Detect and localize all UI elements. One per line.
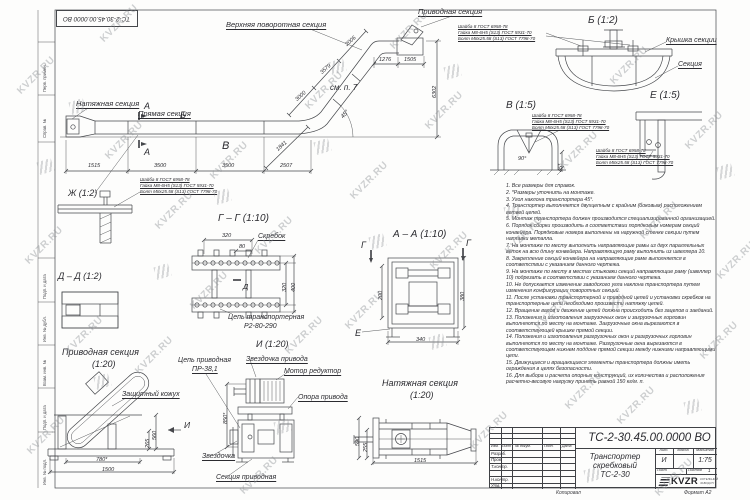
doc-liter: И: [655, 457, 673, 464]
dim-3500-2: 3500: [222, 164, 234, 170]
dim-p-780: 780*: [96, 458, 107, 464]
title-detail-zh: Ж (1:2): [68, 189, 97, 198]
note-item: 7. На монтаже по месту выполнить направл…: [506, 243, 717, 256]
copied-label: Копировал: [556, 490, 581, 496]
label-conveyor-chain-type: Р2-80-290: [244, 323, 277, 330]
stamp-mass-header: Масса: [673, 449, 693, 453]
frame-label-inv-podl: Инв. № подл.: [42, 459, 47, 485]
logo-subtext-2: ЗАВОД.РУ: [700, 482, 718, 485]
detail-letter-e: Е: [355, 329, 361, 338]
hardware-callout-b: Шайба 8 ГОСТ 6958-78 Гайка М8-6Н5 (S13) …: [458, 24, 535, 42]
doc-sheets-count: 1: [708, 469, 711, 474]
note-item: 6. Порядок сборки производить в соответс…: [506, 223, 717, 242]
title-tension-scale: (1:20): [410, 391, 434, 400]
dim-a-340: 340: [416, 338, 425, 344]
label-drive-support: Опора привода: [298, 394, 348, 401]
cut-letter-g-left: Г: [361, 241, 366, 250]
title-section-dd: Д – Д (1:2): [58, 272, 102, 281]
label-drive-sprocket: Звездочка привода: [246, 356, 308, 363]
note-item: 13. Положения и изготовления загрузочных…: [506, 315, 717, 334]
stamp-sheet-header: Лист: [657, 469, 667, 473]
frame-label-sprav: Справ. №: [42, 119, 47, 138]
label-cover: Крышка секции: [666, 37, 717, 44]
title-drive-scale: (1:20): [92, 360, 116, 369]
cut-letter-a-bottom: А: [144, 148, 150, 157]
stamp-row-checker: Пров.: [491, 458, 502, 462]
logo-subtext: КОТЕЛЬНЫЙ ЗАВОД.РУ: [700, 478, 718, 485]
stamp-header-doc: № докум.: [515, 445, 531, 449]
detail-e-view: [636, 112, 702, 179]
frame-label-podp1: Подп. и дата: [42, 274, 47, 299]
dim-g-80: 80: [239, 245, 245, 251]
detail-v-view: [490, 130, 566, 175]
note-item: 3. Угол наклона транспортера 45°.: [506, 197, 717, 203]
title-view-i: И (1:20): [256, 340, 288, 349]
stamp-liter-header: Лит.: [655, 449, 673, 453]
note-item: 2. *Размеры уточнить на монтаже.: [506, 190, 717, 196]
label-motor-reducer: Мотор редуктор: [284, 368, 341, 375]
stamp-header-list: Лист: [502, 445, 511, 449]
stamp-header-date: Дата: [562, 445, 571, 449]
dim-n-590: 590: [356, 437, 362, 446]
stamp-row-ncontrol: Н.контр.: [491, 478, 509, 482]
title-detail-b: Б (1:2): [588, 16, 618, 26]
detail-letter-b: Б: [180, 111, 186, 120]
stamp-row-tcontrol: Т.контр.: [491, 465, 508, 469]
stamp-scale-header: Масштаб: [693, 449, 717, 453]
dim-a-200: 200: [379, 291, 385, 300]
callout-bolt: Болт М8х25.58 (S13) ГОСТ 7798-70: [532, 125, 609, 131]
note-item: 9. На монтаже по месту в местах стыковки…: [506, 269, 717, 282]
dim-p-1500: 1500: [102, 468, 114, 474]
doc-number-top-box: ТС-2-30.45.00.0000 ВО: [56, 10, 138, 27]
label-protective-casing: Защитный кожух: [122, 391, 180, 398]
technical-notes: 1. Все размеры для справок. 2. *Размеры …: [506, 183, 717, 386]
dim-1276: 1276: [379, 58, 391, 64]
dim-n-1515: 1515: [414, 459, 426, 465]
label-sprocket: Звездочка: [202, 453, 235, 460]
callout-bolt: Болт М8х25.58 (S13) ГОСТ 7798-70: [596, 160, 673, 166]
dim-g-400: 400: [292, 283, 298, 292]
frame-label-inv-dubl: Инв. № дубл.: [42, 316, 47, 342]
section-dd-view: [62, 292, 118, 328]
dim-a-380: 380: [461, 292, 467, 301]
dim-6302: 6302: [433, 86, 439, 98]
dim-1505: 1505: [404, 58, 416, 64]
label-drive-section: Приводная секция: [418, 8, 482, 16]
note-item: 16. Для выбора и расчета опорных констру…: [506, 373, 717, 386]
note-item: 1. Все размеры для справок.: [506, 183, 717, 189]
dim-p-560: 560: [153, 431, 159, 440]
label-drive-chain-type: ПР-38,1: [192, 366, 218, 373]
label-scraper: Скребок: [258, 233, 285, 240]
label-section: Секция: [678, 61, 702, 68]
dim-2507: 2507: [280, 164, 292, 170]
stamp-header-izm: Изм.: [491, 445, 499, 449]
stamp-header-sign: Подп.: [544, 445, 554, 449]
doc-title-1: Транспортер: [575, 453, 655, 461]
doc-title-2: скребковый: [575, 462, 655, 470]
dim-i-850: 850*: [224, 413, 230, 424]
title-block: Изм. Лист № докум. Подп. Дата Разраб. Пр…: [489, 427, 716, 488]
dim-g-320-top: 320: [222, 234, 231, 240]
title-drive-section: Приводная секция: [62, 348, 139, 357]
frame-label-vzam: Взам. инв. №: [42, 360, 47, 386]
view-letter-i: И: [184, 421, 190, 430]
detail-b-view: [546, 30, 678, 91]
view-i-drive: [225, 360, 298, 462]
hardware-callout-zh: Шайба 8 ГОСТ 6958-78 Гайка М8-6Н5 (S13) …: [140, 177, 217, 195]
dim-3500-1: 3500: [154, 164, 166, 170]
note-item: 12. Вращение валов и движение цепей долж…: [506, 308, 717, 314]
note-item: 5. Монтаж транспортера должен производит…: [506, 216, 717, 222]
detail-letter-v: В: [222, 141, 229, 152]
note-item: 10. Не допускается изменение заводского …: [506, 282, 717, 295]
doc-scale: 1:75: [693, 457, 717, 464]
drawing-sheet: ТС-2-30.45.00.0000 ВО Перв. примен. Спра…: [0, 0, 750, 500]
callout-bolt: Болт М8х25.58 (S13) ГОСТ 7798-70: [458, 36, 535, 42]
dim-p-265: 265: [146, 439, 152, 448]
dim-v-90: 90°: [518, 157, 526, 163]
format-label: Формат А2: [684, 490, 711, 496]
label-drive-chain: Цепь приводная: [178, 357, 231, 364]
frame-label-podp2: Подп. и дата: [42, 405, 47, 430]
note-item: 15. Движущиеся и вращающиеся элементы тр…: [506, 360, 717, 373]
stamp-row-developer: Разраб.: [491, 452, 506, 456]
doc-number-top: ТС-2-30.45.00.0000 ВО: [63, 15, 130, 22]
logo-bars-icon: [659, 477, 671, 486]
dim-v-45: 45*: [559, 164, 565, 172]
stamp-sheets-header: Листов: [688, 469, 702, 473]
doc-number: ТС-2-30.45.00.0000 ВО: [582, 433, 717, 445]
company-logo: KVZR КОТЕЛЬНЫЙ ЗАВОД.РУ: [660, 476, 718, 487]
frame-label-perv: Перв. примен.: [42, 64, 47, 92]
label-tension-section: Натяжная секция: [76, 100, 139, 108]
note-item: 4. Транспортер выполняется двухцепным с …: [506, 203, 717, 216]
dim-n-255: 255: [364, 443, 370, 452]
note-item: 14. Положения и изготовления разгрузочны…: [506, 334, 717, 359]
detail-zh-view: [58, 191, 140, 243]
hardware-callout-v: Шайба 8 ГОСТ 6958-78 Гайка М8-6Н5 (S13) …: [532, 113, 609, 131]
dim-1515: 1515: [88, 164, 100, 170]
title-section-gg: Г – Г (1:10): [218, 214, 269, 224]
title-tension-section: Натяжная секция: [382, 379, 458, 388]
doc-title-3: ТС-2-30: [575, 471, 655, 479]
label-see-note7: см. п. 7: [330, 84, 357, 92]
title-section-aa: А – А (1:10): [393, 230, 446, 240]
title-detail-e: Е (1:5): [650, 91, 680, 101]
dim-g-320-right: 320: [283, 283, 289, 292]
note-item: 8. Закрепление секций конвейера на напра…: [506, 256, 717, 269]
hardware-callout-e: Шайба 8 ГОСТ 6958-78 Гайка М8-6Н5 (S13) …: [596, 148, 673, 166]
label-conveyor-chain: Цепь транспортерная: [228, 314, 304, 321]
cut-letter-g-right: Г: [466, 239, 471, 248]
label-upper-turn-section: Верхняя поворотная секция: [226, 21, 326, 29]
note-item: 11. После установки транспортерной и при…: [506, 295, 717, 308]
stamp-row-approved: Утв.: [491, 484, 501, 488]
logo-text: KVZR: [671, 476, 698, 487]
cut-letter-a-top: А: [144, 102, 150, 111]
callout-bolt: Болт М8х25.58 (S13) ГОСТ 7798-70: [140, 189, 217, 195]
cut-letter-d: Д: [243, 283, 248, 291]
label-drive-section-part: Секция приводная: [216, 474, 276, 481]
title-detail-v: В (1:5): [506, 101, 536, 111]
